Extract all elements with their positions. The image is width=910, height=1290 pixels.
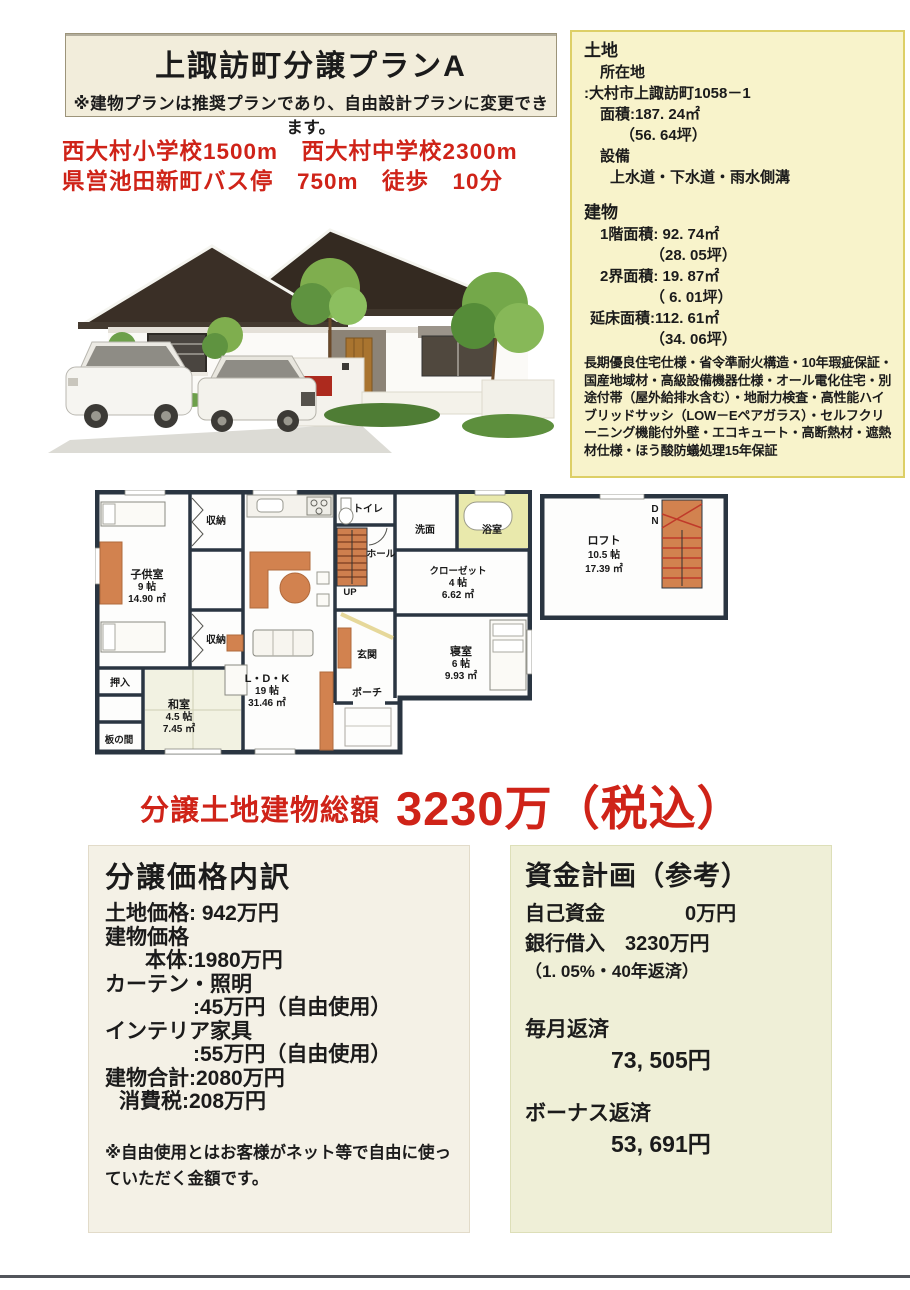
svg-text:寝室: 寝室 [450, 644, 472, 658]
breakdown-note: ※自由使用とはお客様がネット等で自由に使っていただく金額です。 [105, 1140, 457, 1192]
svg-text:7.45 ㎡: 7.45 ㎡ [163, 722, 195, 735]
building-f2: 2界面積: 19. 87㎡ [584, 266, 893, 287]
building-f1-tsubo: （28. 05坪） [584, 245, 893, 266]
breakdown-interior-label: インテリア家具 [105, 1020, 457, 1044]
access-info: 西大村小学校1500m 西大村中学校2300m 県営池田新町バス停 750m 徒… [62, 137, 518, 197]
breakdown-curtain-label: カーテン・照明 [105, 973, 457, 997]
breakdown-title: 分譲価格内訳 [105, 854, 457, 896]
page-edge-line [0, 1275, 910, 1278]
loft-window-mark [600, 494, 644, 499]
title-note: ※建物プランは推奨プランであり、自由設計プランに変更できます。 [66, 90, 556, 138]
breakdown-curtain-price: :45万円（自由使用） [105, 996, 457, 1020]
funding-monthly-value: 73, 505円 [525, 1045, 819, 1075]
funding-plan-box: 資金計画（参考） 自己資金 0万円 銀行借入 3230万円 （1. 05%・40… [510, 845, 832, 1233]
funding-title: 資金計画（参考） [525, 854, 819, 893]
breakdown-tax: 消費税:208万円 [105, 1090, 457, 1114]
land-building-box: 土地 所在地 :大村市上諏訪町1058－1 面積:187. 24㎡ （56. 6… [570, 30, 905, 478]
svg-text:浴室: 浴室 [482, 523, 502, 536]
svg-text:子供室: 子供室 [131, 567, 164, 581]
svg-text:ホール: ホール [367, 549, 396, 560]
breakdown-building-main: 本体:1980万円 [105, 949, 457, 973]
svg-text:4.5 帖: 4.5 帖 [166, 710, 193, 723]
building-f1: 1階面積: 92. 74㎡ [584, 224, 893, 245]
land-title: 土地 [584, 40, 893, 62]
bath-room [458, 494, 528, 548]
svg-text:洗面: 洗面 [415, 523, 435, 536]
land-equip-value: 上水道・下水道・雨水側溝 [584, 167, 893, 188]
page-title: 上諏訪町分譲プランA [66, 41, 556, 85]
funding-monthly-label: 毎月返済 [525, 1015, 819, 1045]
svg-text:ポーチ: ポーチ [352, 686, 382, 699]
building-total: 延床面積:112. 61㎡ [584, 308, 893, 329]
building-title: 建物 [584, 202, 893, 224]
svg-text:31.46 ㎡: 31.46 ㎡ [248, 696, 286, 709]
svg-text:6 帖: 6 帖 [452, 657, 470, 670]
svg-text:N: N [651, 516, 658, 527]
funding-self: 自己資金 0万円 [525, 899, 819, 929]
land-location-label: 所在地 [584, 62, 893, 83]
bedroom-bed [490, 620, 526, 690]
stairs-up [337, 528, 367, 586]
svg-text:19 帖: 19 帖 [255, 684, 279, 697]
title-box: 上諏訪町分譲プランA ※建物プランは推奨プランであり、自由設計プランに変更できま… [65, 33, 557, 117]
building-f2-tsubo: （ 6. 01坪） [584, 287, 893, 308]
floorplan-1f: 収納 収納 子供室 9 帖 14.90 ㎡ 押入 和室 4.5 帖 7.45 ㎡… [95, 490, 532, 762]
building-spec: 長期優良住宅仕様・省令準耐火構造・10年瑕疵保証・国産地域材・高級設備機器仕様・… [584, 354, 893, 460]
svg-text:ロフト: ロフト [588, 534, 621, 547]
breakdown-land-price: 土地価格: 942万円 [105, 902, 457, 926]
svg-text:トイレ: トイレ [353, 503, 383, 515]
land-location-value: :大村市上諏訪町1058－1 [584, 83, 893, 104]
svg-text:クローゼット: クローゼット [429, 565, 486, 577]
svg-text:押入: 押入 [110, 676, 130, 689]
svg-text:玄関: 玄関 [357, 648, 377, 661]
kitchen-counter [247, 495, 333, 517]
total-price: 分譲土地建物総額 3230万（税込） [140, 770, 760, 839]
funding-bonus-value: 53, 691円 [525, 1129, 819, 1159]
access-line-bus: 県営池田新町バス停 750m 徒歩 10分 [62, 167, 518, 197]
stairs-down [662, 500, 702, 588]
svg-text:L・D・K: L・D・K [245, 673, 290, 685]
svg-text:収納: 収納 [206, 514, 226, 527]
floorplan-loft: D N ロフト 10.5 帖 17.39 ㎡ [540, 494, 728, 620]
svg-text:10.5 帖: 10.5 帖 [588, 548, 620, 561]
breakdown-building-total: 建物合計:2080万円 [105, 1067, 457, 1091]
svg-text:9.93 ㎡: 9.93 ㎡ [445, 669, 477, 682]
breakdown-building-price-label: 建物価格 [105, 926, 457, 950]
svg-text:9 帖: 9 帖 [138, 580, 156, 593]
house-rendering-image [30, 210, 560, 455]
svg-text:D: D [651, 504, 658, 515]
building-total-tsubo: （34. 06坪） [584, 329, 893, 350]
car-minivan [66, 342, 192, 428]
svg-text:6.62 ㎡: 6.62 ㎡ [442, 588, 474, 601]
svg-text:4 帖: 4 帖 [449, 576, 467, 589]
funding-terms: （1. 05%・40年返済） [525, 959, 819, 985]
svg-text:17.39 ㎡: 17.39 ㎡ [585, 562, 623, 575]
flyer-page: 上諏訪町分譲プランA ※建物プランは推奨プランであり、自由設計プランに変更できま… [0, 0, 910, 1290]
stove [307, 497, 331, 515]
land-equip-label: 設備 [584, 146, 893, 167]
access-line-schools: 西大村小学校1500m 西大村中学校2300m [62, 137, 518, 167]
land-area: 面積:187. 24㎡ [584, 104, 893, 125]
svg-text:板の間: 板の間 [105, 734, 134, 746]
svg-text:収納: 収納 [206, 633, 226, 646]
funding-bonus-label: ボーナス返済 [525, 1099, 819, 1129]
price-breakdown-box: 分譲価格内訳 土地価格: 942万円 建物価格 本体:1980万円 カーテン・照… [88, 845, 470, 1233]
funding-loan: 銀行借入 3230万円 [525, 929, 819, 959]
breakdown-interior-price: :55万円（自由使用） [105, 1043, 457, 1067]
svg-text:和室: 和室 [168, 697, 190, 711]
land-area-tsubo: （56. 64坪） [584, 125, 893, 146]
total-price-label: 分譲土地建物総額 [140, 787, 380, 829]
svg-text:14.90 ㎡: 14.90 ㎡ [128, 592, 166, 605]
svg-text:UP: UP [343, 587, 357, 598]
total-price-value: 3230万（税込） [396, 770, 745, 839]
